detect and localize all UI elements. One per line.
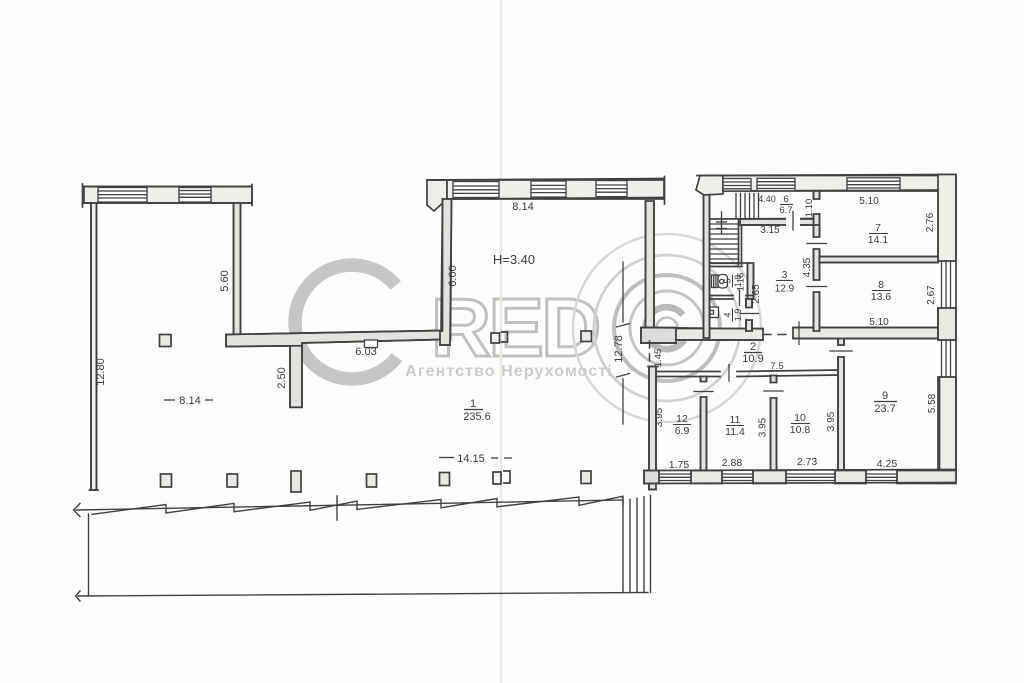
svg-text:11.4: 11.4 — [725, 426, 745, 438]
svg-text:6.03: 6.03 — [355, 346, 376, 358]
svg-text:4: 4 — [723, 312, 733, 317]
svg-text:13.6: 13.6 — [871, 291, 892, 303]
svg-text:10.8: 10.8 — [790, 424, 811, 436]
svg-text:Агентство Нерухомості: Агентство Нерухомості — [405, 363, 613, 380]
svg-text:6.7: 6.7 — [779, 205, 792, 216]
svg-text:1.45: 1.45 — [653, 349, 664, 368]
svg-text:10.9: 10.9 — [742, 353, 763, 365]
svg-text:4.25: 4.25 — [877, 458, 898, 470]
svg-text:1.16: 1.16 — [736, 273, 747, 292]
svg-text:H=3.40: H=3.40 — [493, 252, 535, 267]
svg-text:6: 6 — [783, 194, 788, 205]
svg-text:2.65: 2.65 — [751, 284, 762, 304]
svg-text:2.76: 2.76 — [925, 212, 936, 232]
svg-text:14.1: 14.1 — [868, 234, 889, 246]
svg-text:7: 7 — [875, 222, 881, 234]
svg-text:3: 3 — [782, 270, 788, 281]
svg-text:9: 9 — [882, 390, 888, 402]
svg-text:2.50: 2.50 — [276, 367, 288, 388]
svg-text:5: 5 — [723, 278, 733, 283]
svg-text:3.95: 3.95 — [758, 417, 769, 437]
svg-text:4.40: 4.40 — [758, 194, 776, 204]
svg-text:12.80: 12.80 — [95, 358, 107, 386]
svg-text:3.15: 3.15 — [760, 225, 780, 236]
svg-text:6.9: 6.9 — [675, 425, 690, 437]
svg-text:2.73: 2.73 — [797, 456, 818, 468]
svg-text:3.95: 3.95 — [654, 407, 665, 427]
svg-text:8.14: 8.14 — [179, 395, 200, 407]
svg-text:14.15: 14.15 — [457, 453, 485, 465]
svg-text:5.10: 5.10 — [869, 317, 889, 328]
svg-text:5.58: 5.58 — [927, 393, 938, 413]
svg-text:1.10: 1.10 — [804, 199, 815, 218]
svg-text:2.67: 2.67 — [926, 285, 937, 305]
svg-text:11: 11 — [730, 414, 741, 426]
svg-text:1: 1 — [470, 398, 476, 410]
svg-text:235.6: 235.6 — [463, 411, 491, 423]
svg-text:5.10: 5.10 — [859, 196, 879, 207]
svg-text:1.9: 1.9 — [733, 309, 743, 322]
svg-text:12.78: 12.78 — [613, 335, 625, 363]
svg-text:8: 8 — [878, 279, 884, 291]
svg-text:12: 12 — [676, 413, 688, 425]
svg-text:7.5: 7.5 — [770, 361, 783, 372]
svg-text:3.95: 3.95 — [826, 411, 837, 431]
svg-text:2.88: 2.88 — [722, 457, 743, 469]
svg-text:12.9: 12.9 — [775, 284, 795, 295]
svg-text:23.7: 23.7 — [874, 403, 895, 415]
svg-text:2: 2 — [750, 341, 756, 353]
svg-text:6.00: 6.00 — [447, 265, 459, 286]
svg-text:8.14: 8.14 — [512, 201, 533, 213]
svg-text:5.60: 5.60 — [219, 270, 231, 291]
svg-text:10: 10 — [794, 412, 806, 424]
svg-text:1.75: 1.75 — [669, 459, 690, 471]
svg-text:4.35: 4.35 — [802, 257, 813, 277]
